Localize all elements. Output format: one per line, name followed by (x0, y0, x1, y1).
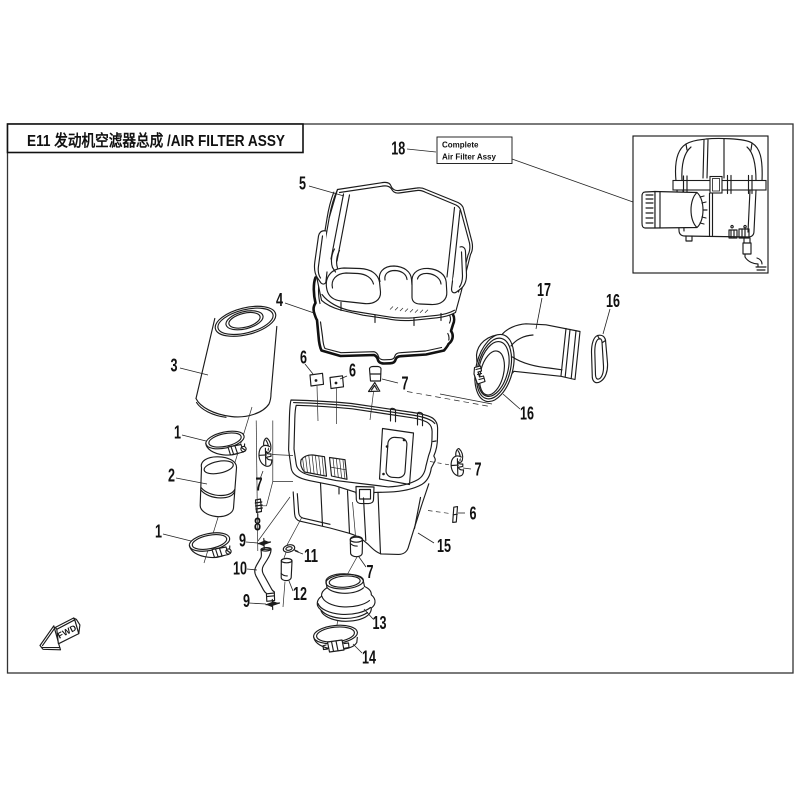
svg-text:18: 18 (391, 139, 405, 159)
svg-text:7: 7 (256, 475, 263, 495)
svg-text:9: 9 (239, 531, 246, 551)
svg-text:4: 4 (276, 290, 283, 310)
svg-text:2: 2 (168, 466, 175, 486)
svg-text:5: 5 (299, 174, 306, 194)
svg-text:14: 14 (362, 648, 376, 668)
svg-text:6: 6 (300, 348, 307, 368)
svg-text:E11 发动机空滤器总成 /AIR FILTER ASSY: E11 发动机空滤器总成 /AIR FILTER ASSY (27, 131, 285, 150)
svg-text:17: 17 (537, 280, 551, 300)
svg-text:6: 6 (470, 504, 477, 524)
svg-text:1: 1 (174, 423, 181, 443)
svg-text:6: 6 (349, 361, 356, 381)
svg-text:1: 1 (155, 522, 162, 542)
svg-text:15: 15 (437, 536, 451, 556)
svg-text:7: 7 (367, 562, 374, 582)
svg-text:10: 10 (233, 559, 247, 579)
svg-text:7: 7 (475, 460, 482, 480)
svg-text:8: 8 (254, 515, 261, 535)
svg-text:9: 9 (243, 591, 250, 611)
svg-text:3: 3 (171, 356, 178, 376)
svg-text:16: 16 (520, 404, 534, 424)
svg-text:13: 13 (373, 613, 387, 633)
svg-text:Complete: Complete (442, 141, 479, 150)
svg-text:11: 11 (304, 546, 318, 566)
svg-text:Air Filter Assy: Air Filter Assy (442, 153, 496, 162)
svg-text:16: 16 (606, 291, 620, 311)
svg-text:7: 7 (402, 374, 409, 394)
svg-text:12: 12 (293, 584, 307, 604)
